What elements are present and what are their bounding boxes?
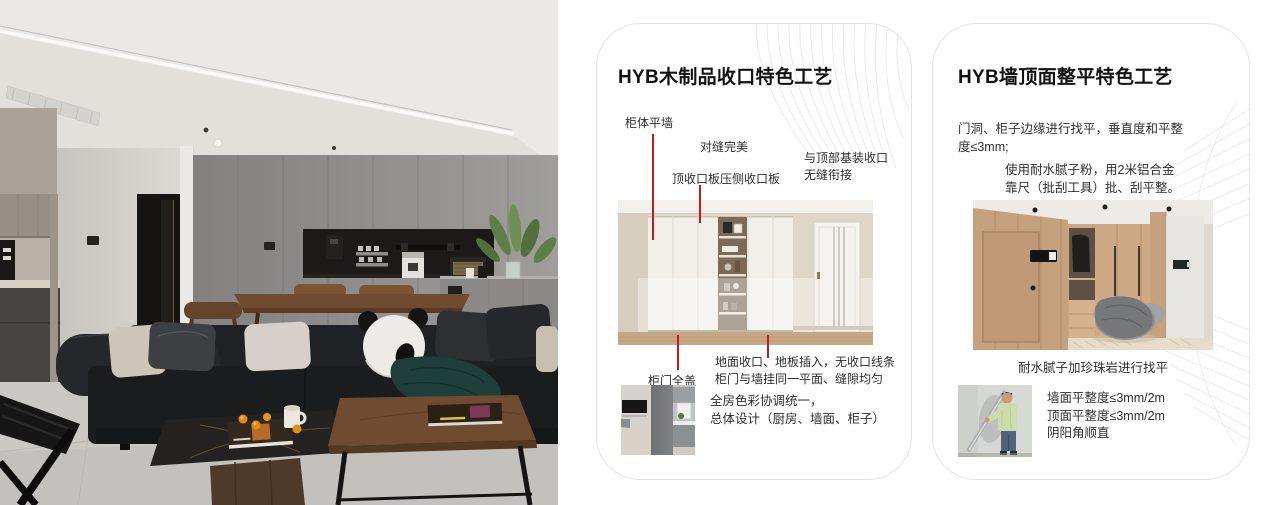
caption-leveling: 耐水腻子加珍珠岩进行找平: [973, 357, 1213, 376]
para-putty: 使用耐水腻子粉，用2米铝合金 靠尺（批刮工具）批、刮平整。: [1005, 161, 1180, 197]
card1-summary: 全房色彩协调统一， 总体设计（厨房、墙面、柜子）: [710, 393, 885, 428]
coffee-niche: [303, 229, 494, 278]
card2-title: HYB墙顶面整平特色工艺: [958, 62, 1173, 89]
light-switch: [87, 236, 99, 245]
thermostat-panel: [1030, 250, 1057, 262]
spotlight: [204, 128, 209, 133]
card1-title: HYB木制品收口特色工艺: [618, 62, 833, 89]
leveling-specs: 墙面平整度≤3mm/2m 顶面平整度≤3mm/2m 阴阳角顺直: [1047, 390, 1165, 443]
leader-line: [677, 335, 679, 370]
leader-line: [652, 134, 654, 240]
note-floor-joint: 地面收口、地板插入，无收口线条 柜门与墙挂同一平面、缝隙均匀: [715, 354, 895, 387]
magazine: [227, 418, 293, 449]
wood-wall: [973, 208, 1068, 350]
card-wall-ceiling-leveling-craft: HYB墙顶面整平特色工艺 门洞、柜子边缘进行找平，垂直度和平整 度≤3mm; 使…: [932, 23, 1250, 480]
interior-door: [814, 222, 860, 332]
callout-cabinet-flush-wall: 柜体平墙: [625, 114, 673, 131]
callout-perfect-seam: 对缝完美: [700, 138, 748, 155]
spec-ceiling-flatness: 顶面平整度≤3mm/2m: [1047, 408, 1165, 426]
wardrobe-render-image: [618, 200, 873, 345]
worker-leveling-image: [958, 385, 1032, 457]
spec-corners-straight: 阴阳角顺直: [1047, 425, 1165, 443]
doorway: [137, 194, 180, 336]
magazine: [428, 403, 503, 427]
card-wood-finish-craft: HYB木制品收口特色工艺 柜体平墙 对缝完美 顶收口板压侧收口板 与顶部基装收口…: [596, 23, 912, 480]
feature-cards-panel: HYB木制品收口特色工艺 柜体平墙 对缝完美 顶收口板压侧收口板 与顶部基装收口…: [558, 0, 1280, 505]
room-overview-image: [621, 385, 695, 455]
living-room-photo: [0, 0, 558, 505]
hallway-wardrobe-image: [973, 200, 1213, 350]
built-in-coffee-machine: [0, 240, 15, 282]
page: HYB木制品收口特色工艺 柜体平墙 对缝完美 顶收口板压侧收口板 与顶部基装收口…: [0, 0, 1280, 505]
wall-coffee-grinder: [326, 235, 343, 259]
callout-top-trim-board: 顶收口板压侧收口板: [672, 170, 780, 187]
callout-ceiling-joint: 与顶部基装收口 无缝衔接: [804, 150, 888, 183]
leader-line: [699, 185, 701, 223]
light-switch: [264, 242, 275, 250]
espresso-machine: [402, 252, 424, 278]
wood-floor: [618, 332, 873, 345]
para-edge-leveling: 门洞、柜子边缘进行找平，垂直度和平整 度≤3mm;: [958, 120, 1183, 156]
spotlight: [332, 146, 336, 150]
spec-wall-flatness: 墙面平整度≤3mm/2m: [1047, 390, 1165, 408]
smoke-detector: [214, 139, 222, 147]
bean-bag: [1093, 296, 1165, 343]
ceiling: [0, 0, 558, 170]
